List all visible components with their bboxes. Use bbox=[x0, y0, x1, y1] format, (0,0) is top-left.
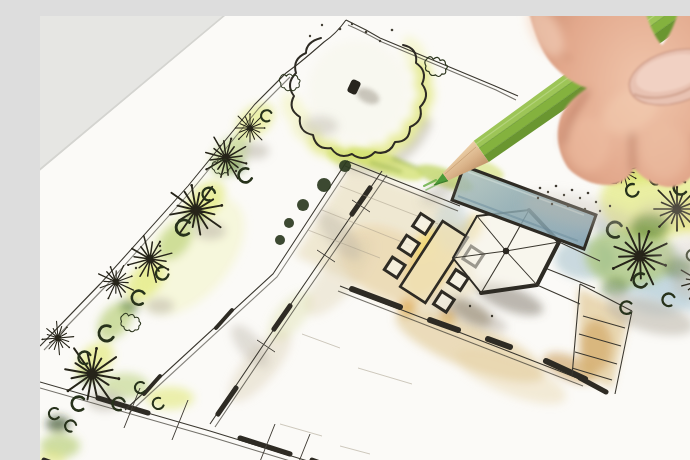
photo-garden-plan-sketch: Close-up photograph of a landscape archi… bbox=[40, 16, 690, 460]
photo-canvas: Close-up photograph of a landscape archi… bbox=[40, 16, 690, 460]
pavilion-center-post bbox=[503, 248, 509, 254]
